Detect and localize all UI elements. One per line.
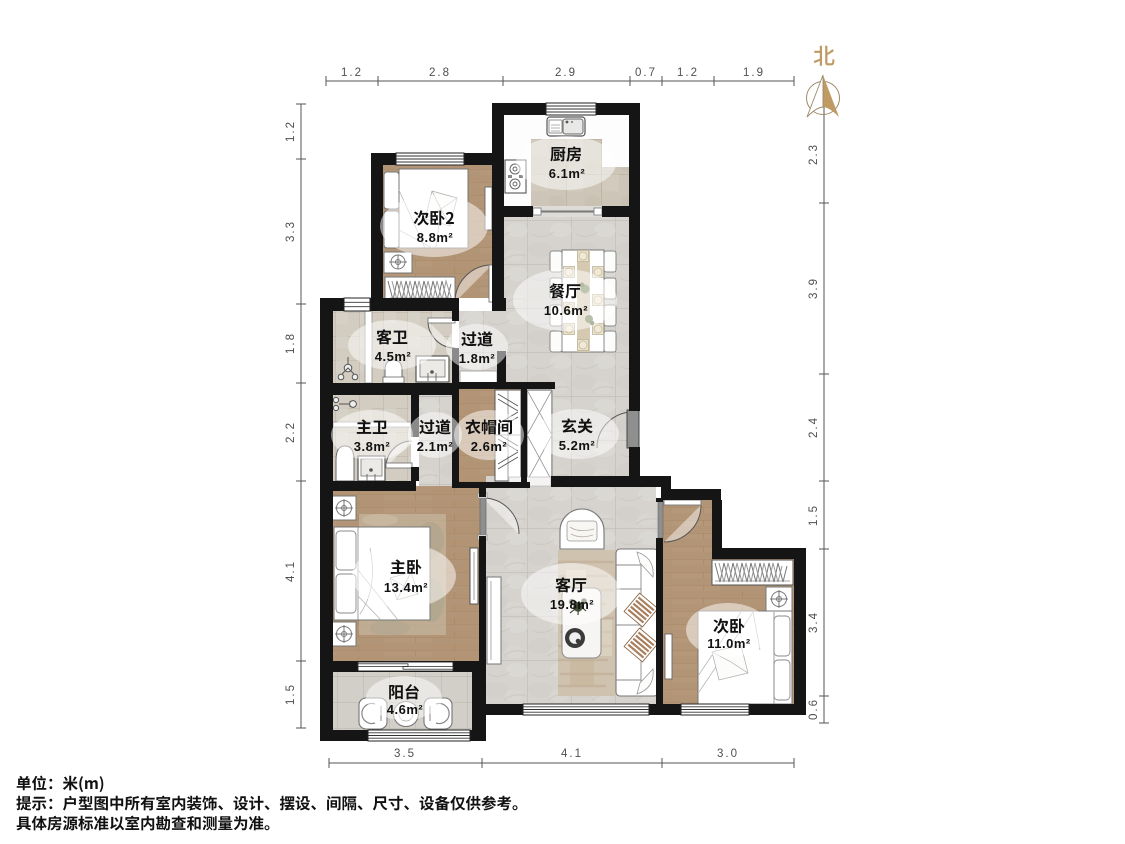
svg-text:8.8m²: 8.8m² [417,230,454,245]
svg-text:2.2: 2.2 [285,421,297,443]
svg-text:3.5: 3.5 [394,748,416,760]
svg-text:13.4m²: 13.4m² [384,580,428,595]
svg-text:4.1: 4.1 [285,560,297,582]
svg-text:3.3: 3.3 [285,220,297,242]
svg-text:3.9: 3.9 [808,277,820,299]
svg-text:2.6m²: 2.6m² [471,439,508,454]
svg-text:1.5: 1.5 [285,683,297,705]
svg-text:2.4: 2.4 [808,416,820,438]
svg-text:3.4: 3.4 [808,611,820,633]
svg-text:4.6m²: 4.6m² [387,702,424,717]
svg-text:1.2: 1.2 [677,67,699,79]
svg-text:6.1m²: 6.1m² [549,166,586,181]
svg-text:11.0m²: 11.0m² [707,636,751,651]
svg-text:0.7: 0.7 [635,67,657,79]
svg-text:3.8m²: 3.8m² [354,439,391,454]
svg-text:19.8m²: 19.8m² [550,597,594,612]
svg-text:2.3: 2.3 [808,143,820,165]
svg-text:1.2: 1.2 [285,120,297,142]
svg-text:2.8: 2.8 [429,67,451,79]
svg-text:2.1m²: 2.1m² [417,439,454,454]
svg-text:1.8: 1.8 [285,332,297,354]
svg-text:5.2m²: 5.2m² [559,438,596,453]
svg-text:2.9: 2.9 [555,67,577,79]
svg-text:1.2: 1.2 [341,67,363,79]
svg-text:10.6m²: 10.6m² [544,303,588,318]
svg-text:4.1: 4.1 [561,748,583,760]
svg-text:4.5m²: 4.5m² [375,349,412,364]
svg-text:1.8m²: 1.8m² [459,351,496,366]
svg-text:1.9: 1.9 [743,67,765,79]
svg-text:1.5: 1.5 [808,504,820,526]
svg-text:0.6: 0.6 [808,698,820,720]
svg-text:3.0: 3.0 [717,748,739,760]
